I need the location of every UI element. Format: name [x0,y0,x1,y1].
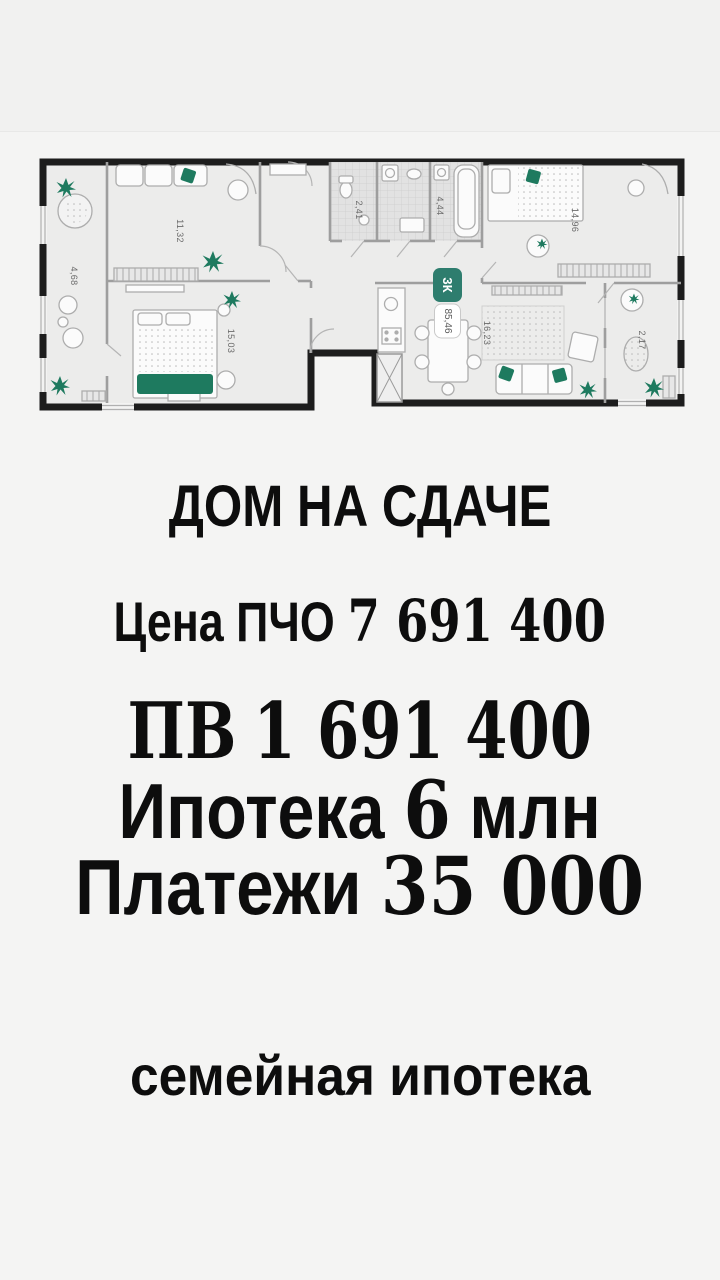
area-bathroom-large: 4,44 [435,196,445,215]
floor-plan-svg: 11,32 4,68 15,03 2,41 4,44 14,96 16,23 2… [30,148,690,420]
monthly-payment-label: Платежи [76,843,362,931]
title-line: ДОМ НА СДАЧЕ [0,478,720,536]
footer-text: семейная ипотека [130,1044,591,1107]
down-payment-label: ПВ [128,686,237,777]
price-value: 7 691 400 [348,587,606,655]
area-balcony-left: 4,68 [69,266,79,285]
floor-plan: 11,32 4,68 15,03 2,41 4,44 14,96 16,23 2… [30,148,690,420]
area-bedroom-right: 14,96 [570,208,580,233]
area-balcony-right: 2,17 [637,330,647,349]
badge-area-label: 85,46 [442,308,453,333]
mortgage-line: Ипотека6млн [0,770,720,850]
area-bedroom-left: 15,03 [226,329,236,354]
area-kitchen-living: 16,23 [482,321,492,346]
listing-flyer: { "page": { "background": "#f3f3f2" }, "… [0,0,720,1280]
top-background-band [0,0,720,132]
down-payment-line: ПВ1 691 400 [0,692,720,771]
badge-type-label: 3К [440,277,455,292]
shaft [377,354,402,402]
monthly-payment-value: 35 000 [381,839,644,933]
price-line: Цена ПЧО7 691 400 [0,592,720,650]
monthly-payment-line: Платежи35 000 [0,846,720,926]
mortgage-label: Ипотека [119,767,385,855]
footer-line: семейная ипотека [0,1048,720,1104]
page-title: ДОМ НА СДАЧЕ [169,474,552,539]
green-blanket [137,374,213,394]
price-label: Цена ПЧО [114,590,335,653]
area-living-room: 11,32 [175,219,185,243]
area-bathroom-small: 2,41 [354,200,364,219]
